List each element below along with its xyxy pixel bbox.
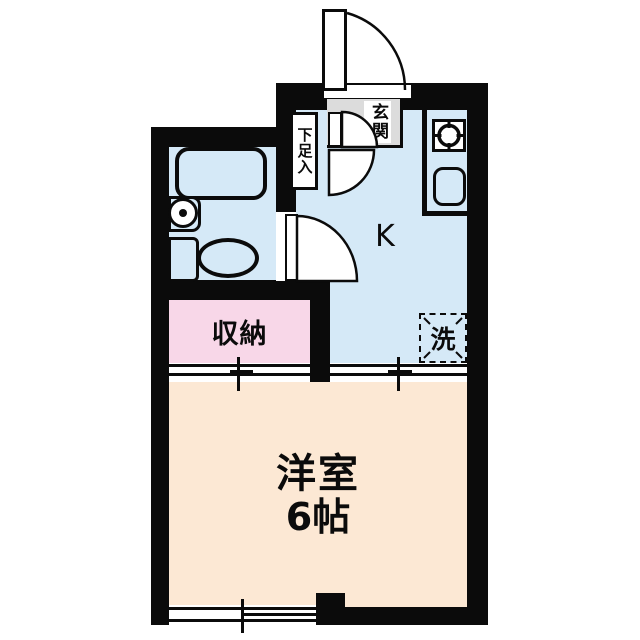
stove [432, 119, 466, 152]
floorplan-canvas: 玄関 下足入 洗 K 収納 洋室 6帖 [0, 0, 640, 640]
window-line-middle [242, 613, 316, 616]
entrance-door-leaf [322, 9, 347, 91]
wall-bath-storage [151, 280, 330, 300]
shoe-cabinet: 下足入 [290, 112, 318, 190]
kitchen-label-box: K [360, 218, 410, 254]
storage-label: 収納 [212, 312, 268, 351]
toilet-bowl [197, 238, 259, 278]
window-line-bottom [169, 619, 316, 622]
western-room-name: 洋室 [276, 451, 360, 497]
wash-basin-drain [179, 209, 187, 217]
entrance-door-arc [347, 13, 405, 90]
pillar-bottom [316, 593, 345, 625]
genkan-door-leaf [328, 112, 342, 147]
kitchen-label: K [375, 219, 395, 254]
outer-wall-bottom-right [345, 607, 488, 625]
sliding-left-line-bottom [169, 373, 310, 376]
washer-space: 洗 [419, 313, 467, 363]
toilet-tank [168, 237, 199, 282]
outer-wall-left [151, 127, 169, 625]
sliding-left-line-top [169, 364, 310, 367]
pillar-storage-kitchen [310, 280, 330, 382]
kitchen-sink [433, 167, 466, 206]
window-line-top [169, 607, 316, 610]
genkan-label: 玄関 [369, 103, 386, 141]
wall-bath-top [151, 127, 296, 147]
bathtub [175, 147, 267, 200]
genkan-label-box: 玄関 [364, 101, 391, 143]
western-room-size: 6帖 [286, 497, 350, 539]
storage-label-box: 収納 [169, 300, 310, 363]
outer-wall-right [467, 83, 488, 625]
sliding-right-line-top [330, 364, 467, 367]
sliding-right-line-bottom [330, 373, 467, 376]
bathroom-door-leaf [285, 214, 298, 281]
western-room-label-box: 洋室 6帖 [169, 440, 467, 550]
washer-label: 洗 [430, 320, 455, 356]
shoe-cabinet-label: 下足入 [297, 127, 312, 175]
